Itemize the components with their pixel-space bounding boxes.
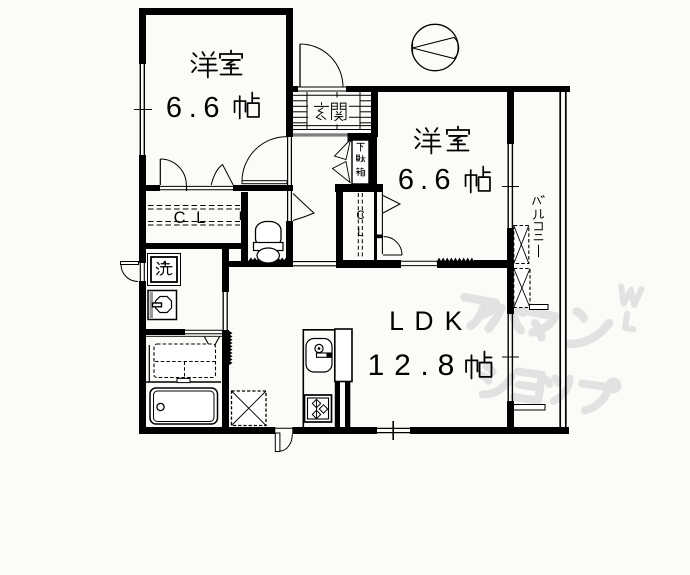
svg-text:K: K [445,306,463,336]
svg-text:.: . [420,349,428,382]
svg-text:2: 2 [394,349,411,382]
svg-text:C: C [356,210,364,222]
svg-text:.: . [420,164,428,196]
svg-text:L: L [357,227,364,239]
svg-text:8: 8 [438,349,455,382]
svg-text:C L: C L [174,209,209,227]
svg-text:6: 6 [203,92,219,124]
svg-text:D: D [414,306,433,336]
svg-text:.: . [189,92,197,124]
svg-text:1: 1 [368,349,385,382]
svg-text:L: L [389,306,404,336]
svg-text:6: 6 [434,164,450,196]
svg-text:6: 6 [398,164,414,196]
svg-text:6: 6 [166,92,182,124]
